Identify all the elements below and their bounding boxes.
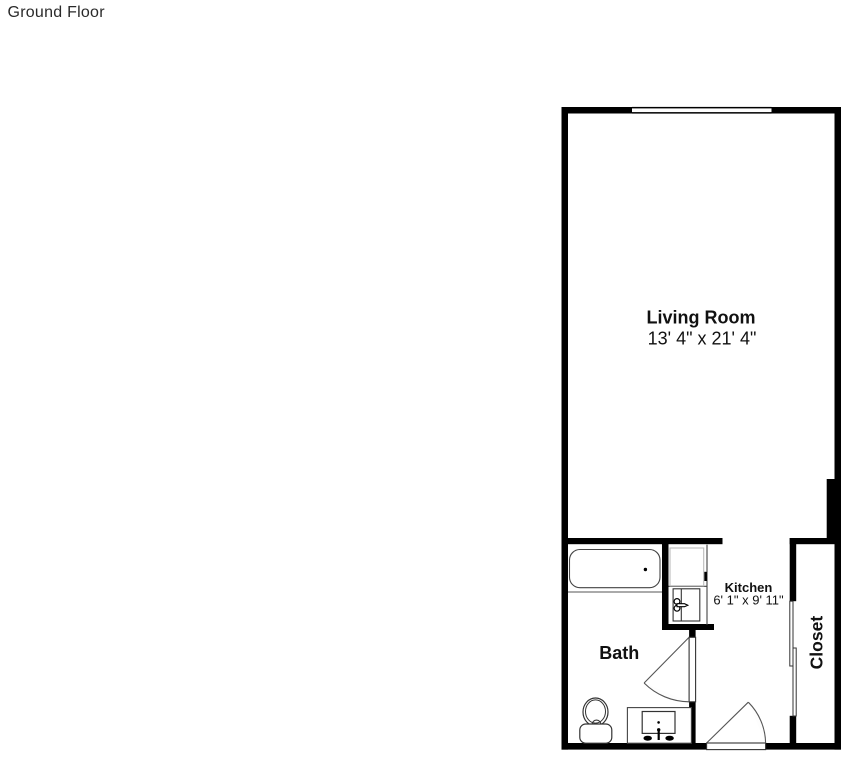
svg-text:6' 1" x 9' 11": 6' 1" x 9' 11" [713,593,784,608]
svg-text:Closet: Closet [806,616,826,670]
svg-text:13' 4" x 21' 4": 13' 4" x 21' 4" [648,329,757,349]
svg-text:Living Room: Living Room [647,308,756,328]
svg-text:Ground Floor: Ground Floor [8,4,106,21]
svg-text:Bath: Bath [599,643,639,663]
